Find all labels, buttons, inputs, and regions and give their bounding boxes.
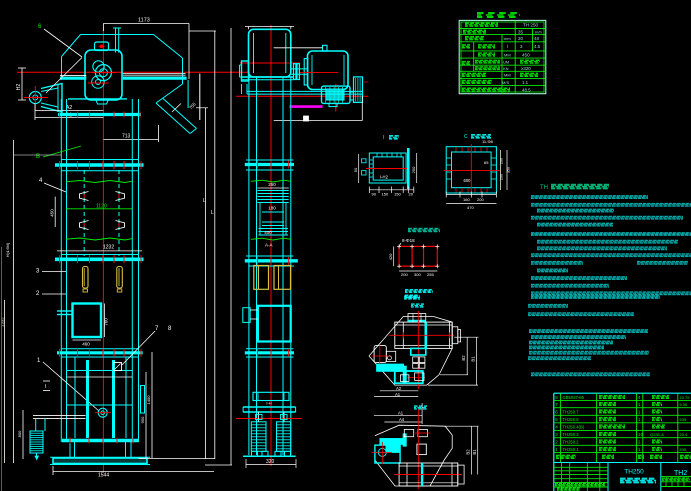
svg-text:TH: TH: [540, 185, 548, 191]
svg-text:GB5027-86: GB5027-86: [563, 395, 585, 400]
svg-text:TH250.4(B): TH250.4(B): [563, 424, 585, 429]
svg-text:20: 20: [409, 192, 414, 197]
svg-text:50: 50: [353, 167, 358, 172]
svg-text:MM: MM: [504, 73, 511, 78]
svg-text:TH250.6: TH250.6: [563, 417, 580, 422]
svg-text:9.06: 9.06: [680, 402, 689, 407]
svg-text:420: 420: [388, 253, 393, 260]
svg-text:TH250.1: TH250.1: [563, 447, 580, 452]
svg-text:C: C: [464, 134, 468, 140]
svg-text:1173: 1173: [138, 18, 150, 24]
svg-text:4.5: 4.5: [534, 44, 541, 49]
svg-text:1120: 1120: [96, 204, 107, 210]
svg-text:B1: B1: [471, 356, 476, 362]
svg-text:65: 65: [484, 160, 489, 165]
svg-text:B2: B2: [466, 449, 471, 455]
svg-text:8: 8: [555, 395, 558, 400]
svg-text:200: 200: [401, 272, 408, 277]
svg-text:2: 2: [555, 439, 558, 444]
svg-text:4: 4: [555, 424, 558, 429]
svg-text:835: 835: [680, 447, 687, 452]
svg-text:M/S: M/S: [502, 80, 509, 85]
svg-text:320: 320: [266, 459, 275, 465]
svg-text:250: 250: [268, 182, 276, 187]
svg-text:TH2: TH2: [674, 470, 687, 477]
svg-text:11-Φ8: 11-Φ8: [482, 139, 494, 144]
svg-text:10.75: 10.75: [680, 395, 691, 400]
svg-text:mm: mm: [504, 36, 511, 41]
svg-text:≥320: ≥320: [521, 66, 531, 71]
svg-text:1544: 1544: [98, 473, 109, 479]
svg-text:A4: A4: [399, 417, 405, 422]
svg-text:L: L: [203, 198, 206, 204]
svg-text:H2: H2: [16, 84, 22, 91]
svg-text:5: 5: [555, 417, 558, 422]
svg-text:1335: 1335: [0, 317, 5, 327]
svg-text:200: 200: [500, 174, 504, 180]
svg-text:L: L: [211, 210, 214, 216]
svg-text:A1: A1: [395, 392, 401, 397]
svg-text:150: 150: [394, 192, 401, 197]
svg-text:3: 3: [555, 432, 558, 437]
svg-text:16: 16: [638, 432, 643, 437]
svg-text:A2: A2: [396, 386, 402, 391]
svg-text:800: 800: [17, 430, 22, 437]
svg-text:90: 90: [372, 192, 377, 197]
svg-text:200: 200: [477, 197, 484, 202]
svg-text:UM: UM: [503, 59, 509, 64]
svg-text:950: 950: [140, 416, 145, 423]
svg-text:470: 470: [467, 205, 474, 210]
svg-text:20.4: 20.4: [680, 432, 689, 437]
svg-text:TH250.3: TH250.3: [563, 432, 580, 437]
svg-text:350: 350: [507, 167, 511, 173]
svg-text:200: 200: [500, 158, 504, 164]
svg-text:A1: A1: [398, 411, 404, 416]
svg-text:35: 35: [518, 30, 523, 35]
svg-text:300: 300: [414, 272, 421, 277]
svg-text:713: 713: [122, 134, 131, 140]
svg-text:48: 48: [534, 36, 539, 41]
svg-text:1.1: 1.1: [522, 80, 529, 85]
svg-text:B2: B2: [461, 355, 466, 361]
svg-text:1232: 1232: [103, 245, 114, 251]
svg-text:TH250: TH250: [624, 469, 644, 476]
svg-text:400: 400: [264, 230, 272, 235]
svg-text:TH 250: TH 250: [523, 23, 539, 28]
svg-text:255: 255: [427, 272, 434, 277]
svg-text:1400: 1400: [146, 395, 151, 405]
svg-text:MM: MM: [504, 52, 511, 57]
svg-text:H(4.6M): H(4.6M): [5, 242, 10, 257]
svg-text:6: 6: [555, 409, 558, 414]
svg-text:180: 180: [268, 206, 276, 211]
svg-text:TH250.7: TH250.7: [563, 409, 580, 414]
svg-text:1: 1: [555, 447, 558, 452]
svg-text:450: 450: [522, 52, 530, 57]
svg-text:460: 460: [82, 342, 90, 347]
svg-text:760: 760: [104, 318, 109, 326]
svg-text:TH250.2: TH250.2: [563, 439, 580, 444]
svg-text:m/h: m/h: [535, 30, 542, 35]
svg-text:Q235-A: Q235-A: [650, 432, 664, 437]
svg-text:KN: KN: [503, 66, 509, 71]
svg-text:I-H: I-H: [266, 401, 271, 406]
svg-text:150: 150: [382, 192, 389, 197]
svg-text:250: 250: [411, 166, 416, 173]
svg-text:30: 30: [518, 36, 523, 41]
svg-text:48.5: 48.5: [522, 87, 531, 92]
svg-text:B1: B1: [472, 449, 477, 455]
svg-text:A-A: A-A: [265, 243, 273, 248]
svg-text:I: I: [383, 135, 384, 141]
svg-text:160: 160: [463, 197, 470, 202]
svg-text:600: 600: [464, 178, 472, 183]
svg-text:7: 7: [555, 402, 558, 407]
svg-text:I-H2: I-H2: [380, 175, 389, 180]
svg-text:450: 450: [50, 209, 55, 217]
svg-text:8-Φ18: 8-Φ18: [402, 238, 415, 243]
svg-text:l: l: [507, 44, 508, 49]
svg-text:535: 535: [680, 417, 687, 422]
